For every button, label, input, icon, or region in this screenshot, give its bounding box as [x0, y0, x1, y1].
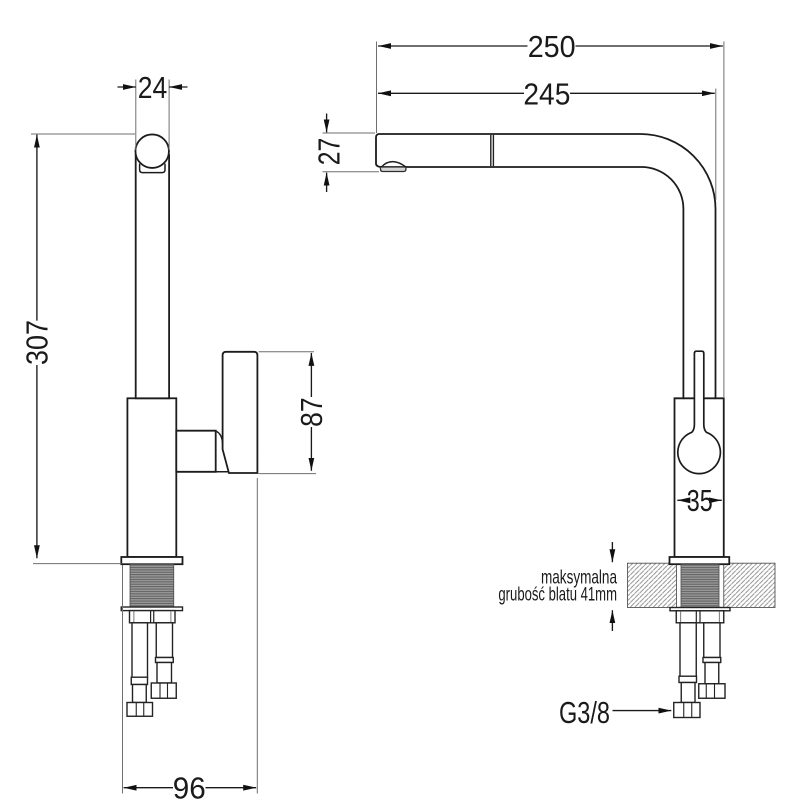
svg-text:250: 250: [528, 29, 576, 64]
svg-text:96: 96: [173, 770, 206, 800]
svg-text:35: 35: [687, 483, 713, 518]
svg-text:27: 27: [312, 138, 347, 166]
svg-text:24: 24: [138, 70, 168, 105]
svg-text:307: 307: [20, 320, 55, 365]
svg-text:245: 245: [523, 76, 570, 111]
svg-text:G3/8: G3/8: [559, 695, 610, 730]
svg-text:87: 87: [294, 397, 329, 427]
svg-text:grubość blatu 41mm: grubość blatu 41mm: [498, 584, 617, 606]
